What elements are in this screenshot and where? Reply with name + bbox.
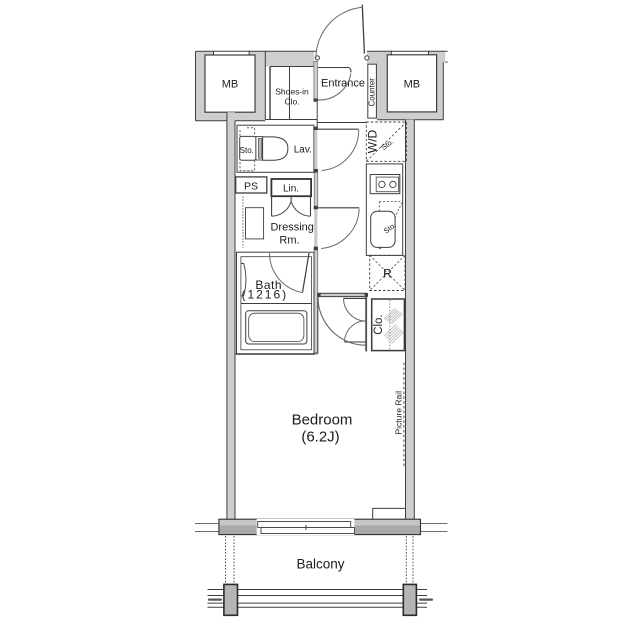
svg-text:PS: PS — [244, 180, 258, 192]
svg-text:Shoes-in: Shoes-in — [275, 87, 309, 97]
svg-text:Counter: Counter — [368, 78, 377, 107]
svg-text:(1216): (1216) — [241, 287, 288, 301]
svg-text:Sto.: Sto. — [240, 146, 254, 155]
svg-text:Dressing: Dressing — [270, 222, 313, 234]
svg-text:Clo.: Clo. — [373, 314, 385, 334]
svg-text:Rm.: Rm. — [279, 235, 299, 247]
svg-text:Entrance: Entrance — [321, 78, 365, 90]
svg-text:R: R — [383, 267, 392, 281]
svg-text:(6.2J): (6.2J) — [301, 429, 339, 446]
svg-text:Balcony: Balcony — [296, 557, 344, 572]
svg-text:Lav.: Lav. — [294, 145, 312, 156]
svg-text:Lin.: Lin. — [283, 184, 299, 195]
svg-text:Picture Rail: Picture Rail — [394, 391, 404, 435]
svg-text:MB: MB — [222, 79, 239, 91]
svg-text:W/D: W/D — [366, 130, 380, 154]
svg-text:Clo.: Clo. — [284, 97, 299, 107]
svg-text:Bedroom: Bedroom — [292, 412, 353, 429]
svg-text:MB: MB — [404, 79, 421, 91]
